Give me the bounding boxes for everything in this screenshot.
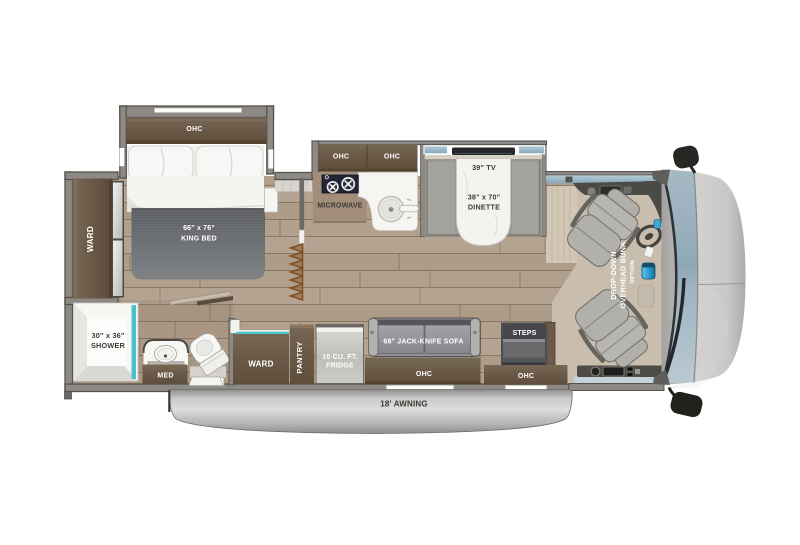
svg-text:38" x 70": 38" x 70" <box>468 193 501 202</box>
svg-text:SHOWER: SHOWER <box>91 341 126 350</box>
svg-text:10 CU. FT.: 10 CU. FT. <box>322 354 357 361</box>
svg-text:OHC: OHC <box>384 153 400 160</box>
svg-text:OPTION: OPTION <box>630 260 636 283</box>
svg-text:OHC: OHC <box>333 153 349 160</box>
svg-text:WARD: WARD <box>86 226 95 252</box>
svg-text:WARD: WARD <box>248 360 273 369</box>
svg-text:30" x 36": 30" x 36" <box>91 331 124 340</box>
svg-text:FRIDGE: FRIDGE <box>326 363 354 370</box>
svg-text:PANTRY: PANTRY <box>295 341 304 373</box>
svg-text:OVERHEAD BUNK: OVERHEAD BUNK <box>619 241 628 309</box>
svg-text:66" x 76": 66" x 76" <box>183 225 215 232</box>
svg-text:MED: MED <box>157 373 173 380</box>
svg-text:18' AWNING: 18' AWNING <box>380 400 428 409</box>
svg-text:STEPS: STEPS <box>513 330 537 337</box>
svg-text:OHC: OHC <box>186 126 202 133</box>
svg-text:DINETTE: DINETTE <box>468 203 500 212</box>
svg-text:KING BED: KING BED <box>181 236 217 243</box>
svg-text:DROP-DOWN: DROP-DOWN <box>609 251 618 299</box>
svg-text:OHC: OHC <box>518 373 534 380</box>
svg-text:OHC: OHC <box>416 371 432 378</box>
svg-text:68" JACK-KNIFE SOFA: 68" JACK-KNIFE SOFA <box>383 339 463 346</box>
svg-text:MICROWAVE: MICROWAVE <box>317 202 362 209</box>
svg-text:39" TV: 39" TV <box>472 163 496 172</box>
